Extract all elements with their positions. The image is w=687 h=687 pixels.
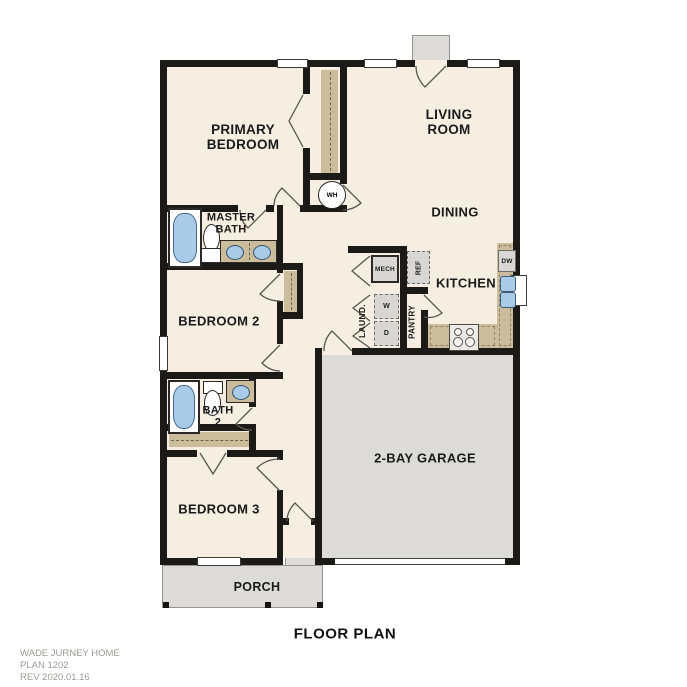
room-label-bedroom-2: BEDROOM 2 xyxy=(178,315,259,330)
front-door-opening xyxy=(415,60,447,67)
wall-segment xyxy=(303,173,347,180)
sink-icon xyxy=(253,245,271,260)
burner xyxy=(453,337,463,347)
washer: W xyxy=(374,294,399,319)
kitchen-sink-basin xyxy=(500,292,516,308)
room-label-garage: 2-BAY GARAGE xyxy=(374,452,476,467)
room-label-master-bath: MASTER BATH xyxy=(201,212,261,237)
wall-segment xyxy=(277,263,283,273)
wall-segment xyxy=(281,518,289,525)
wall-segment xyxy=(160,60,167,565)
dryer-label: D xyxy=(384,330,389,337)
washer-label: W xyxy=(383,303,390,310)
room-label-pantry: PANTRY xyxy=(409,305,418,339)
wall-segment xyxy=(277,450,283,460)
dryer: D xyxy=(374,321,399,346)
room-label-dining: DINING xyxy=(431,206,478,221)
garage-door xyxy=(335,558,505,565)
front-stoop xyxy=(412,35,450,61)
footer-line-1: WADE JURNEY HOME xyxy=(20,648,120,660)
primary-closet-shelf xyxy=(321,70,338,173)
wall-segment xyxy=(513,60,520,565)
refrigerator-label: REF xyxy=(415,260,422,275)
window xyxy=(364,59,397,68)
wall-segment xyxy=(303,148,310,212)
wall-segment xyxy=(303,67,310,94)
toilet-tank xyxy=(201,248,221,263)
dishwasher-label: DW xyxy=(501,258,512,265)
porch-post xyxy=(317,602,323,608)
wall-segment xyxy=(400,246,407,352)
wall-segment xyxy=(297,263,303,319)
window xyxy=(159,336,168,371)
bathtub-icon xyxy=(168,208,202,268)
burner xyxy=(466,328,474,336)
kitchen-sink-basin xyxy=(500,276,516,292)
room-label-porch: PORCH xyxy=(234,580,281,594)
room-label-bedroom-3: BEDROOM 3 xyxy=(178,503,259,518)
dishwasher: DW xyxy=(498,250,516,272)
wall-segment xyxy=(277,301,283,344)
wall-segment xyxy=(352,348,520,355)
floorplan-canvas: MECH W D REF DW WH xyxy=(0,0,687,687)
burner xyxy=(465,337,475,347)
refrigerator: REF xyxy=(407,251,430,284)
wall-segment xyxy=(315,348,322,565)
window xyxy=(197,557,241,566)
mechanical-label: MECH xyxy=(375,266,395,273)
sink-icon xyxy=(232,385,250,400)
room-label-laundry: LAUND. xyxy=(358,304,368,338)
room-label-kitchen: KITCHEN xyxy=(436,277,496,292)
wall-segment xyxy=(167,372,283,379)
sink-icon xyxy=(226,245,244,260)
wall-segment xyxy=(227,450,283,457)
window xyxy=(467,59,500,68)
water-heater-label: WH xyxy=(327,192,338,199)
wall-segment xyxy=(266,205,274,212)
footer-line-3: REV 2020.01.16 xyxy=(20,672,120,684)
plan-footer: WADE JURNEY HOME PLAN 1202 REV 2020.01.1… xyxy=(20,648,120,684)
water-heater: WH xyxy=(318,181,346,209)
wall-segment xyxy=(167,450,197,457)
bathtub-icon xyxy=(168,380,200,434)
wall-segment xyxy=(348,246,407,253)
wall-segment xyxy=(407,287,428,294)
wall-segment xyxy=(160,60,520,67)
mechanical-unit: MECH xyxy=(371,255,399,283)
page-title: FLOOR PLAN xyxy=(294,626,397,643)
porch-post xyxy=(163,602,169,608)
footer-line-2: PLAN 1202 xyxy=(20,660,120,672)
room-label-living-room: LIVING ROOM xyxy=(417,107,481,137)
window xyxy=(277,59,308,68)
burner xyxy=(454,328,462,336)
hall-linen-shelf xyxy=(169,432,250,447)
room-label-bath-2: BATH 2 xyxy=(199,405,237,430)
wall-segment xyxy=(277,205,283,270)
room-label-primary-bedroom: PRIMARY BEDROOM xyxy=(198,122,288,152)
range-icon xyxy=(449,324,479,351)
bedroom2-closet-shelf xyxy=(284,271,297,312)
porch-post xyxy=(265,602,271,608)
wall-segment xyxy=(340,67,347,184)
wall-segment xyxy=(421,310,428,352)
